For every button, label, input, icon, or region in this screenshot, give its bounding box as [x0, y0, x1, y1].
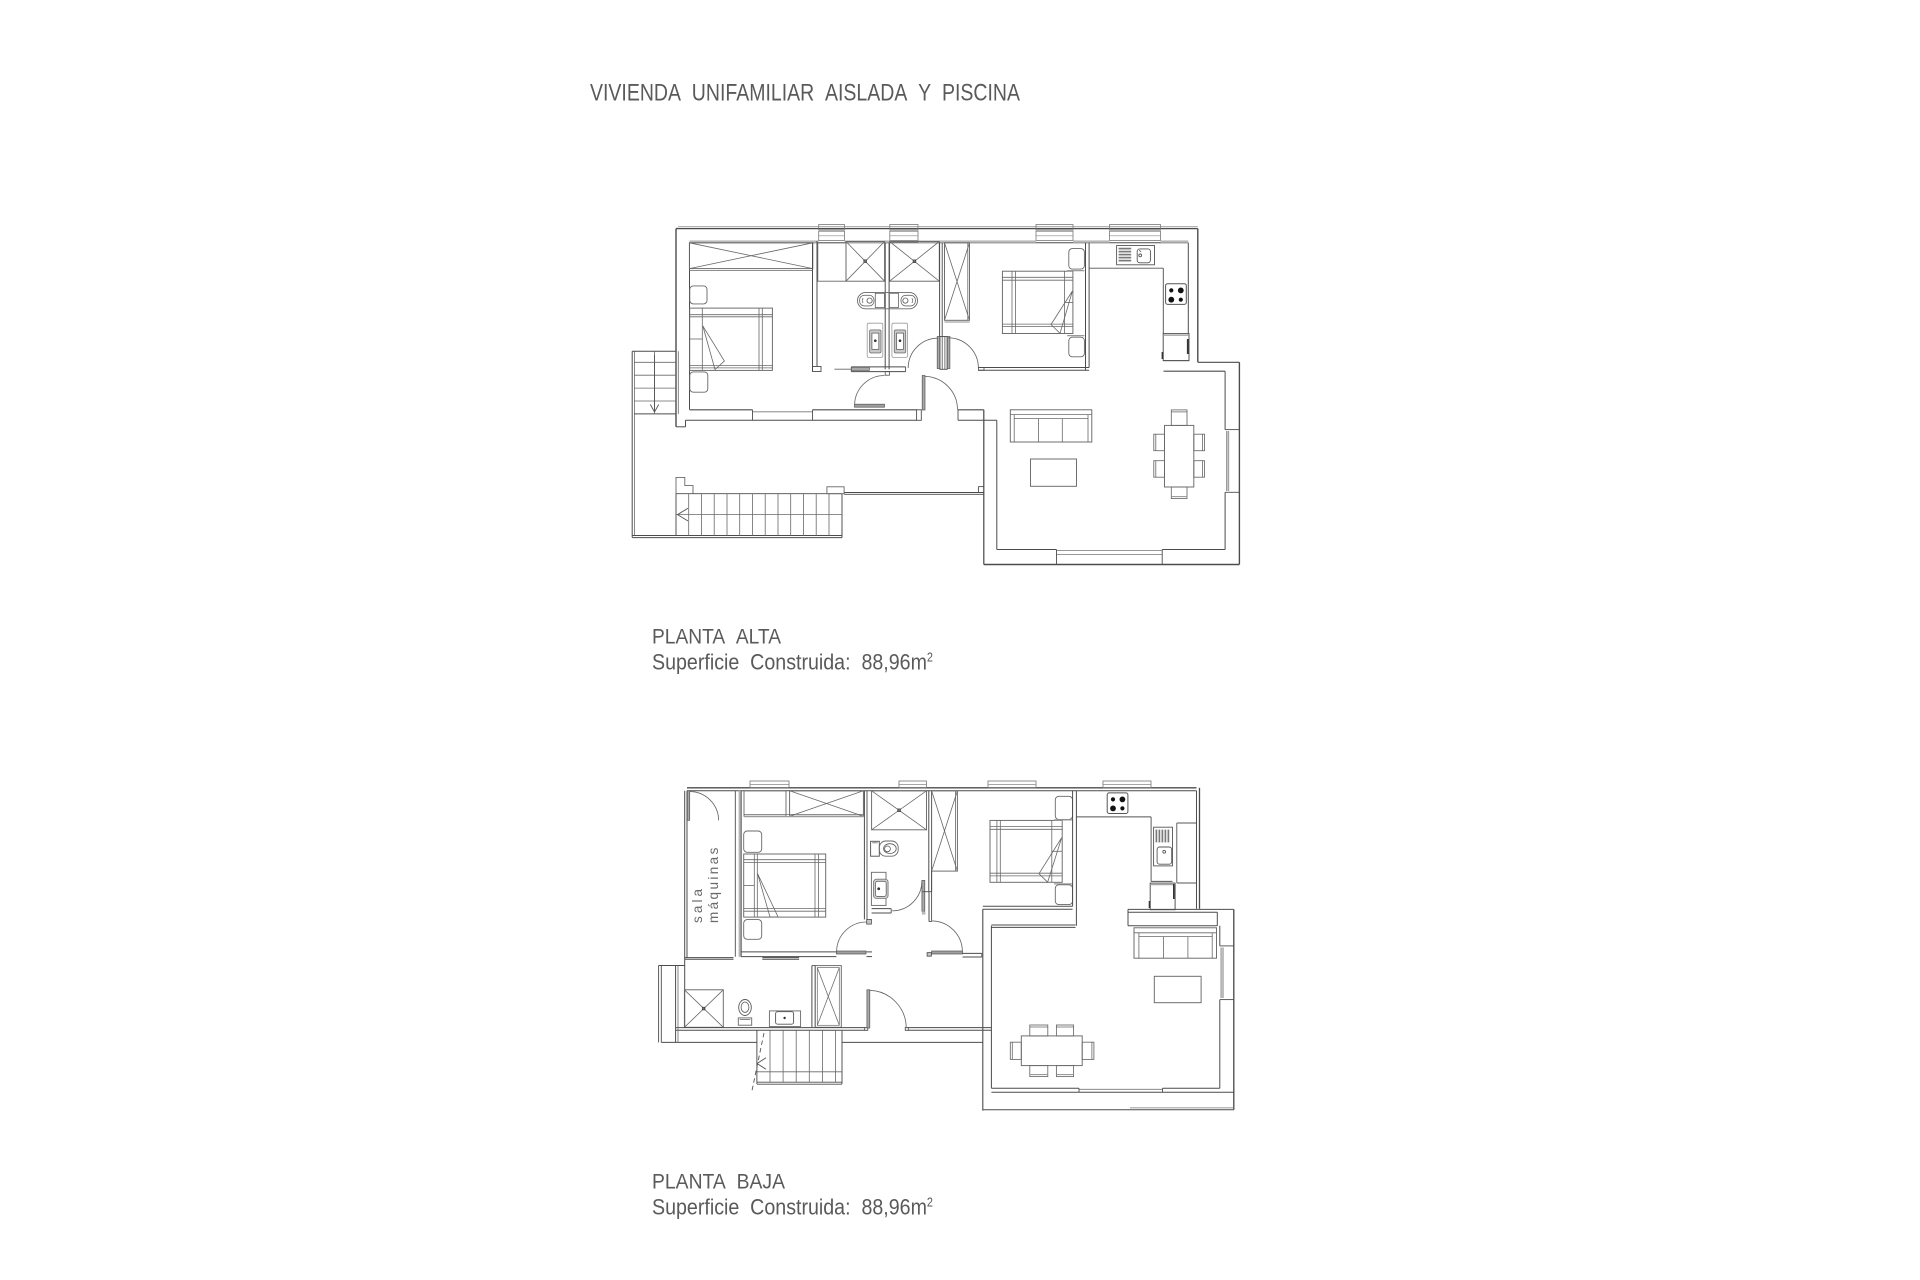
- svg-text:máquinas: máquinas: [706, 845, 721, 923]
- svg-text:sala: sala: [690, 886, 705, 923]
- svg-text:PLANTA BAJA: PLANTA BAJA: [652, 1169, 786, 1193]
- svg-text:Superficie Construida: 88,96: Superficie Construida: 88,96m2: [652, 649, 933, 674]
- svg-text:Superficie Construida: 88,96: Superficie Construida: 88,96m2: [652, 1194, 933, 1219]
- svg-text:VIVIENDA UNIFAMILIAR AISLADA: VIVIENDA UNIFAMILIAR AISLADA Y PISCINA: [590, 80, 1020, 107]
- svg-text:PLANTA ALTA: PLANTA ALTA: [652, 624, 782, 648]
